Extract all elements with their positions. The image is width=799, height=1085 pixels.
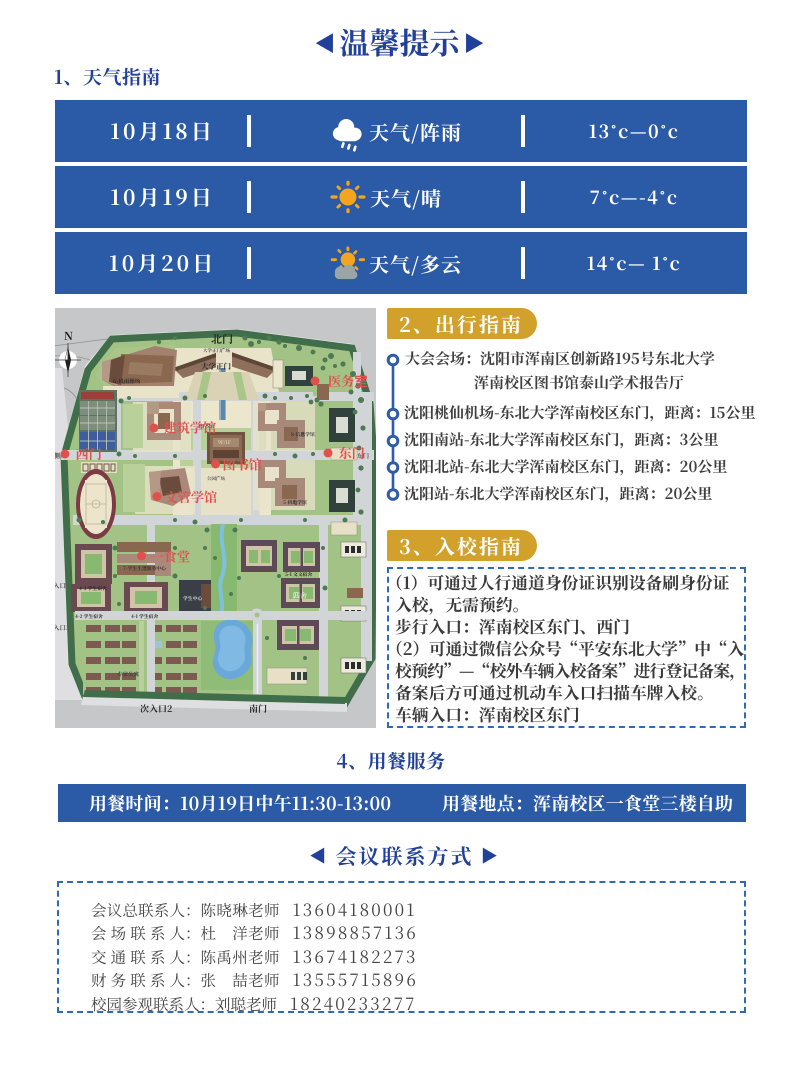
- svg-text:公园广场: 公园广场: [207, 475, 225, 482]
- svg-text:南门: 南门: [249, 702, 267, 715]
- svg-text:7-学生生活服务中心: 7-学生生活服务中心: [123, 565, 167, 572]
- svg-text:4-3 学生宿舍: 4-3 学生宿舍: [79, 585, 107, 592]
- svg-text:图书馆: 图书馆: [223, 455, 263, 474]
- svg-text:四舍: 四舍: [293, 591, 307, 601]
- svg-text:大学正门: 大学正门: [201, 361, 231, 372]
- svg-text:5-1 文文宿舍: 5-1 文文宿舍: [285, 571, 312, 578]
- svg-text:专家公寓: 专家公寓: [117, 670, 140, 678]
- svg-text:N: N: [64, 328, 73, 344]
- svg-text:4-1 学生宿舍: 4-1 学生宿舍: [131, 613, 158, 620]
- svg-text:4-2 学生宿舍: 4-2 学生宿舍: [75, 613, 103, 620]
- svg-text:次入口2: 次入口2: [140, 702, 172, 715]
- svg-text:文管学馆: 文管学馆: [165, 487, 218, 506]
- svg-text:5-机电学馆: 5-机电学馆: [283, 499, 307, 506]
- svg-text:建筑学馆: 建筑学馆: [164, 418, 217, 437]
- svg-text:北门: 北门: [211, 331, 233, 347]
- svg-text:西门: 西门: [76, 444, 102, 463]
- svg-text:入口2: 入口2: [55, 581, 70, 590]
- svg-text:8-信息学馆: 8-信息学馆: [291, 431, 315, 438]
- svg-text:医务室: 医务室: [328, 371, 368, 390]
- svg-text:大学正门广场: 大学正门广场: [203, 347, 230, 354]
- svg-text:一食堂: 一食堂: [151, 547, 191, 566]
- svg-text:东门: 东门: [339, 443, 365, 462]
- svg-text:入口3: 入口3: [55, 623, 70, 632]
- svg-text:6-风雨操场: 6-风雨操场: [113, 377, 141, 385]
- svg-text:9F/1F: 9F/1F: [218, 439, 231, 446]
- svg-text:学生中心: 学生中心: [183, 595, 203, 602]
